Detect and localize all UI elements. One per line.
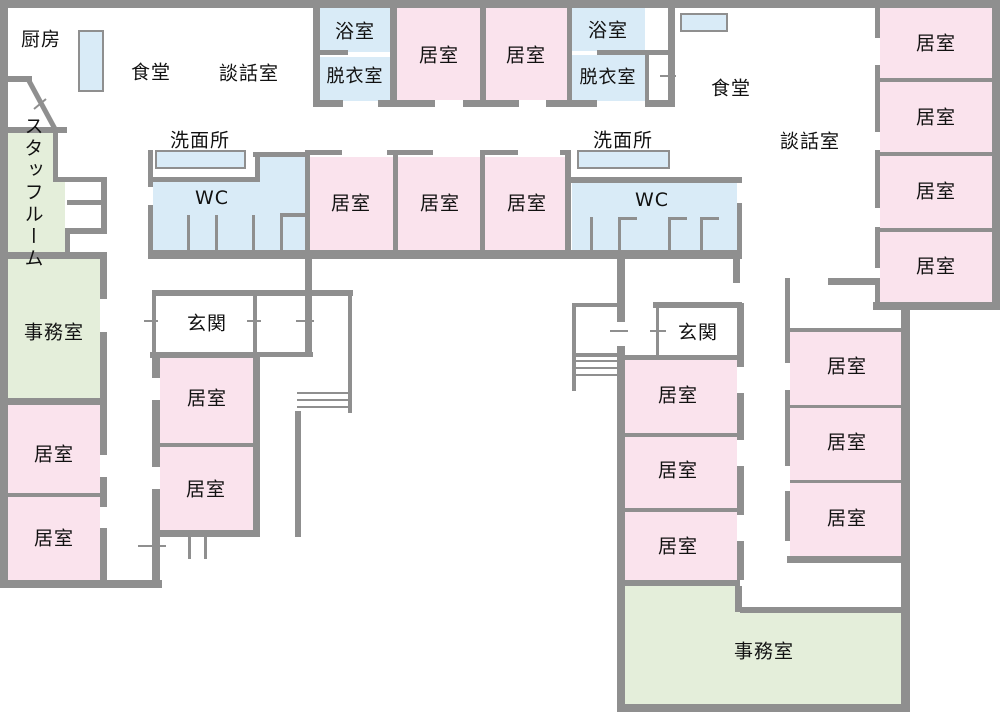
office-right-label: 事務室 — [734, 637, 794, 664]
office-left-label: 事務室 — [24, 318, 84, 345]
washroom-left-label: 洗面所 — [170, 126, 230, 153]
kitchen-label: 厨房 — [21, 25, 61, 52]
resident-rwing-3-label: 居室 — [658, 532, 698, 559]
floor-plan: 厨房 食堂 談話室 浴室 脱衣室 居室 居室 浴室 脱衣室 食堂 談話室 洗面所… — [0, 0, 1000, 714]
resident-mid-3-label: 居室 — [507, 189, 547, 216]
resident-br-2-label: 居室 — [827, 428, 867, 455]
resident-rwing-2-label: 居室 — [658, 456, 698, 483]
bath-right-label: 浴室 — [588, 16, 628, 43]
staff-room-label: スタッフルーム — [20, 116, 47, 270]
resident-top-2-label: 居室 — [506, 41, 546, 68]
resident-far-1-label: 居室 — [916, 29, 956, 56]
lounge-left-label: 談話室 — [219, 59, 279, 86]
dining-right-label: 食堂 — [711, 74, 751, 101]
resident-far-4-label: 居室 — [916, 252, 956, 279]
lounge-right-label: 談話室 — [780, 127, 840, 154]
resident-br-3-label: 居室 — [827, 504, 867, 531]
resident-left-2-label: 居室 — [34, 524, 74, 551]
resident-mid-2-label: 居室 — [420, 189, 460, 216]
wc-right-label: WC — [635, 189, 669, 211]
resident-top-1-label: 居室 — [419, 41, 459, 68]
entrance-left-label: 玄関 — [187, 309, 227, 336]
changing-right-label: 脱衣室 — [580, 63, 637, 89]
resident-midcol-1-label: 居室 — [187, 384, 227, 411]
resident-rwing-1-label: 居室 — [658, 381, 698, 408]
bath-left-label: 浴室 — [335, 17, 375, 44]
changing-left-label: 脱衣室 — [327, 62, 384, 88]
resident-br-1-label: 居室 — [827, 352, 867, 379]
wc-left-label: WC — [195, 187, 229, 209]
resident-far-3-label: 居室 — [916, 177, 956, 204]
entrance-right-label: 玄関 — [678, 318, 718, 345]
dining-left-label: 食堂 — [131, 58, 171, 85]
washroom-right-label: 洗面所 — [593, 126, 653, 153]
resident-mid-1-label: 居室 — [331, 189, 371, 216]
resident-midcol-2-label: 居室 — [186, 475, 226, 502]
resident-far-2-label: 居室 — [916, 103, 956, 130]
resident-left-1-label: 居室 — [34, 440, 74, 467]
